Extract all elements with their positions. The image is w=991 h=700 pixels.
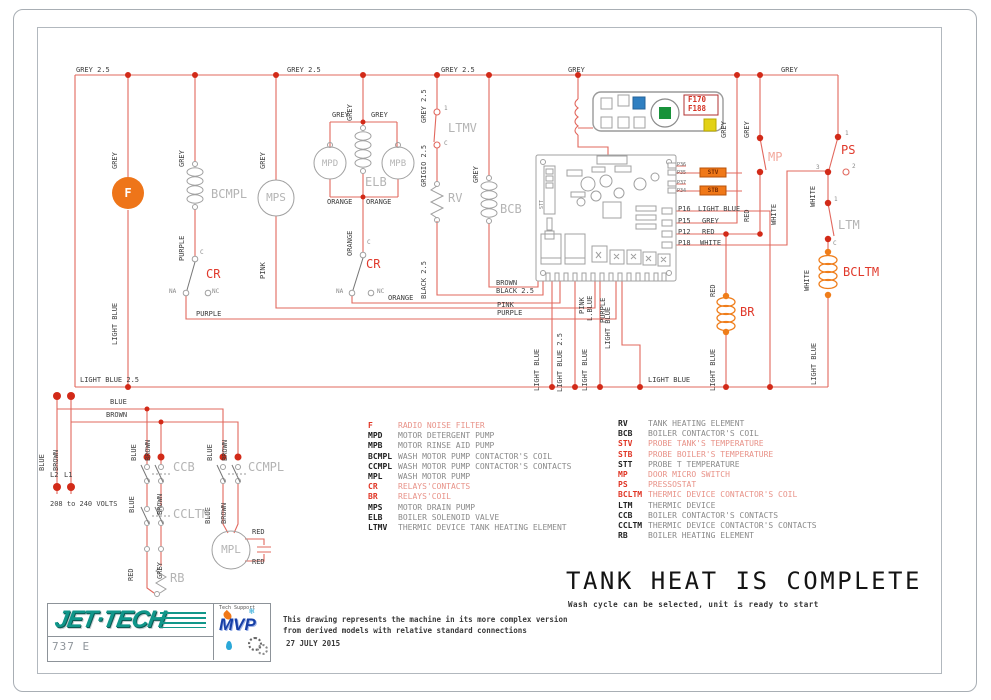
wire-label-orange: ORANGE [347,231,354,256]
wire-label-pink: PINK [497,302,514,309]
wire-label-grey: GREY [781,67,798,74]
legend-row: STVPROBE TANK'S TEMPERATURE [618,439,817,449]
wire-label-grey: GREY [721,121,728,138]
wire-label-purple: PURPLE [196,311,221,318]
model-number: 737 E [52,640,90,653]
wire-label-blue: BLUE [131,444,138,461]
legend-row: CCLTMTHERMIC DEVICE CONTACTOR'S CONTACTS [618,521,817,531]
wire-label-grey: GREY [112,152,119,169]
terminal-c: C [444,141,448,147]
wire-label-lightblue: LIGHT BLUE [582,349,589,391]
wire-label-white: WHITE [804,270,811,291]
wire-label-lightblue: LIGHT BLUE [811,343,818,385]
pin-label-p12: P12 [678,229,691,236]
legend-row: MPDOOR MICRO SWITCH [618,470,817,480]
legend-row: STTPROBE T TEMPERATURE [618,460,817,470]
terminal-2: 2 [852,164,856,170]
terminal-nc: NC [377,289,384,295]
component-label-bcb: BCB [500,203,522,215]
component-label-bcltm: BCLTM [843,266,879,278]
legend-row: MPLWASH MOTOR PUMP [368,472,571,482]
wire-label-grey25: GREY 2.5 [441,67,475,74]
component-label-ccltm: CCLTM [173,508,209,520]
pin-label-p37: P37 [677,181,686,186]
component-label-cr: CR [366,258,380,270]
component-label-ccb: CCB [173,461,195,473]
component-label-f: F [121,187,135,199]
wire-label-red: RED [128,568,135,581]
wire-label-white: WHITE [771,204,778,225]
wire-label-pink: PINK [579,297,586,314]
component-label-ltm: LTM [838,219,860,231]
legend-row: LTMTHERMIC DEVICE [618,501,817,511]
wire-label-orange: ORANGE [327,199,352,206]
wire-label-red: RED [710,284,717,297]
title-block-divider [213,603,214,660]
wire-label-black25: BLACK 2.5 [421,261,428,299]
drawing-date: 27 JULY 2015 [286,640,340,648]
wire-label-grey25: GREY 2.5 [76,67,110,74]
wire-label-lightblue25: LIGHT BLUE 2.5 [80,377,139,384]
wire-label-blue: BLUE [110,399,127,406]
status-subtitle: Wash cycle can be selected, unit is read… [568,600,819,609]
component-label-ps: PS [841,144,855,156]
component-label-mpl: MPL [218,544,244,556]
schematic-canvas [0,0,991,700]
wire-label-grey: GREY [260,152,267,169]
pin-label-p18: P18 [678,240,691,247]
wire-label-blue: BLUE [129,496,136,513]
gear-icon [257,644,268,655]
wire-label-grey: GREY [157,562,164,579]
legend-row: CCMPLWASH MOTOR PUMP CONTACTOR'S CONTACT… [368,462,571,472]
wire-label-grey25: GREY 2.5 [287,67,321,74]
legend-row: PSPRESSOSTAT [618,480,817,490]
legend-row: MPSMOTOR DRAIN PUMP [368,503,571,513]
terminal-na: NA [169,289,176,295]
component-label-mps: MPS [263,192,289,204]
mvp-logo: MVP [219,615,256,635]
legend-row: STBPROBE BOILER'S TEMPERATURE [618,450,817,460]
component-label-cr: CR [206,268,220,280]
supply-voltage-label: 208 to 240 VOLTS [50,501,117,508]
legend-row: BCMPLWASH MOTOR PUMP CONTACTOR'S COIL [368,452,571,462]
control-board [536,155,676,281]
wire-label-lightblue: LIGHT BLUE [648,377,690,384]
legend-row: RVTANK HEATING ELEMENT [618,419,817,429]
terminal-label-l1: L1 [64,472,72,479]
title-block-divider [47,636,213,637]
legend-row: RBBOILER HEATING ELEMENT [618,531,817,541]
wire-label-brown: BROWN [221,503,228,524]
wire-label-lightblue: LIGHT BLUE [112,303,119,345]
terminal-label-l2: L2 [50,472,58,479]
wire-label-orange: ORANGE [366,199,391,206]
drawing-note-line1: This drawing represents the machine in i… [283,616,567,624]
terminal-1: 1 [444,106,448,112]
wire-label-purple: PURPLE [497,310,522,317]
wiring-diagram-sheet: GREY 2.5 GREY 2.5 GREY 2.5 GREY GREY GRE… [0,0,991,700]
wire-label-purple: PURPLE [179,236,186,261]
wire-label-grey: GREY [371,112,388,119]
legend-row: FRADIO NOISE FILTER [368,421,571,431]
wire-label-brown: BROWN [496,280,517,287]
water-drop-icon [226,641,232,650]
legend-row: BRRELAYS'COIL [368,492,571,502]
wire-label-blue: BLUE [39,454,46,471]
wire-label-brown: BROWN [145,440,152,461]
wire-label-grey: GREY [347,104,354,121]
terminal-na: NA [336,289,343,295]
component-label-mpd: MPD [319,158,341,170]
component-label-elb: ELB [365,176,387,188]
pin-label-p15: P15 [678,218,691,225]
legend-row: MPBMOTOR RINSE AID PUMP [368,441,571,451]
pin-label-p35: P35 [677,171,686,176]
pin-label-p34: P34 [677,189,686,194]
wire-label-white: WHITE [700,240,721,247]
wire-label-red: RED [252,529,265,536]
status-title: TANK HEAT IS COMPLETE [566,567,922,595]
wire-label-grey: GREY [744,121,751,138]
wire-label-lightblue: LIGHT BLUE [710,349,717,391]
legend-row: BCLTMTHERMIC DEVICE CONTACTOR'S COIL [618,490,817,500]
wire-label-grigio25: GRIGIO 2.5 [421,145,428,187]
component-label-bcmpl: BCMPL [211,188,247,200]
wire-label-brown: BROWN [106,412,127,419]
legend-row: CRRELAYS'CONTACTS [368,482,571,492]
jet-tech-logo-stripes [160,612,206,628]
component-label-ltmv: LTMV [448,122,477,134]
br-coil-symbol [717,298,735,331]
terminal-3: 3 [816,165,820,171]
board-component-stt-label: STT [539,200,546,209]
legend-right-column: RVTANK HEATING ELEMENT BCBBOILER CONTACT… [618,419,817,541]
wire-label-lightblue25: LIGHT BLUE 2.5 [557,333,564,392]
legend-row: BCBBOILER CONTACTOR'S COIL [618,429,817,439]
terminal-c: C [833,241,837,247]
probe-label-stb: STB [700,186,726,195]
component-label-br: BR [740,306,754,318]
wire-label-orange: ORANGE [388,295,413,302]
bcltm-coil-symbol [819,256,837,289]
component-label-mp: MP [768,151,782,163]
wire-label-grey: GREY [473,166,480,183]
wire-label-black25: BLACK 2.5 [496,288,534,295]
terminal-c: C [367,240,371,246]
wire-label-purple: PURPLE [600,298,607,323]
component-label-mpb: MPB [387,158,409,170]
component-label-ccmpl: CCMPL [248,461,284,473]
legend-row: LTMVTHERMIC DEVICE TANK HEATING ELEMENT [368,523,571,533]
pin-label-p16: P16 [678,206,691,213]
terminal-nc: NC [212,289,219,295]
wire-label-pink: PINK [260,262,267,279]
drawing-note-line2: from derived models with relative standa… [283,627,527,635]
wire-label-lightblue: LIGHT BLUE [698,206,740,213]
wire-label-blue: BLUE [207,444,214,461]
jet-tech-logo: JET·TECH [53,606,167,634]
wire-label-grey: GREY [568,67,585,74]
wire-label-grey: GREY [702,218,719,225]
wire-label-red: RED [744,209,751,222]
probe-label-stv: STV [700,168,726,177]
component-label-rv: RV [448,192,462,204]
display-code-f170: F170 [688,96,706,104]
wire-label-lightblue: LIGHT BLUE [534,349,541,391]
wire-label-grey25: GREY 2.5 [421,89,428,123]
wire-label-white: WHITE [810,186,817,207]
wire-label-brown: BROWN [53,450,60,471]
legend-row: MPDMOTOR DETERGENT PUMP [368,431,571,441]
terminal-1: 1 [834,197,838,203]
wire-label-grey: GREY [179,150,186,167]
pin-label-p36: P36 [677,163,686,168]
wire-label-brown: BROWN [222,440,229,461]
legend-left-column: FRADIO NOISE FILTER MPDMOTOR DETERGENT P… [368,421,571,533]
legend-row: CCBBOILER CONTACTOR'S CONTACTS [618,511,817,521]
display-code-f188: F188 [688,105,706,113]
wire-label-red: RED [702,229,715,236]
wire-label-brown: BROWN [157,494,164,515]
wire-label-red: RED [252,559,265,566]
wire-label-lblue: L.BLUE [587,296,594,321]
legend-row: ELBBOILER SOLENOID VALVE [368,513,571,523]
terminal-c: C [200,250,204,256]
component-label-rb: RB [170,572,184,584]
terminal-1: 1 [845,131,849,137]
